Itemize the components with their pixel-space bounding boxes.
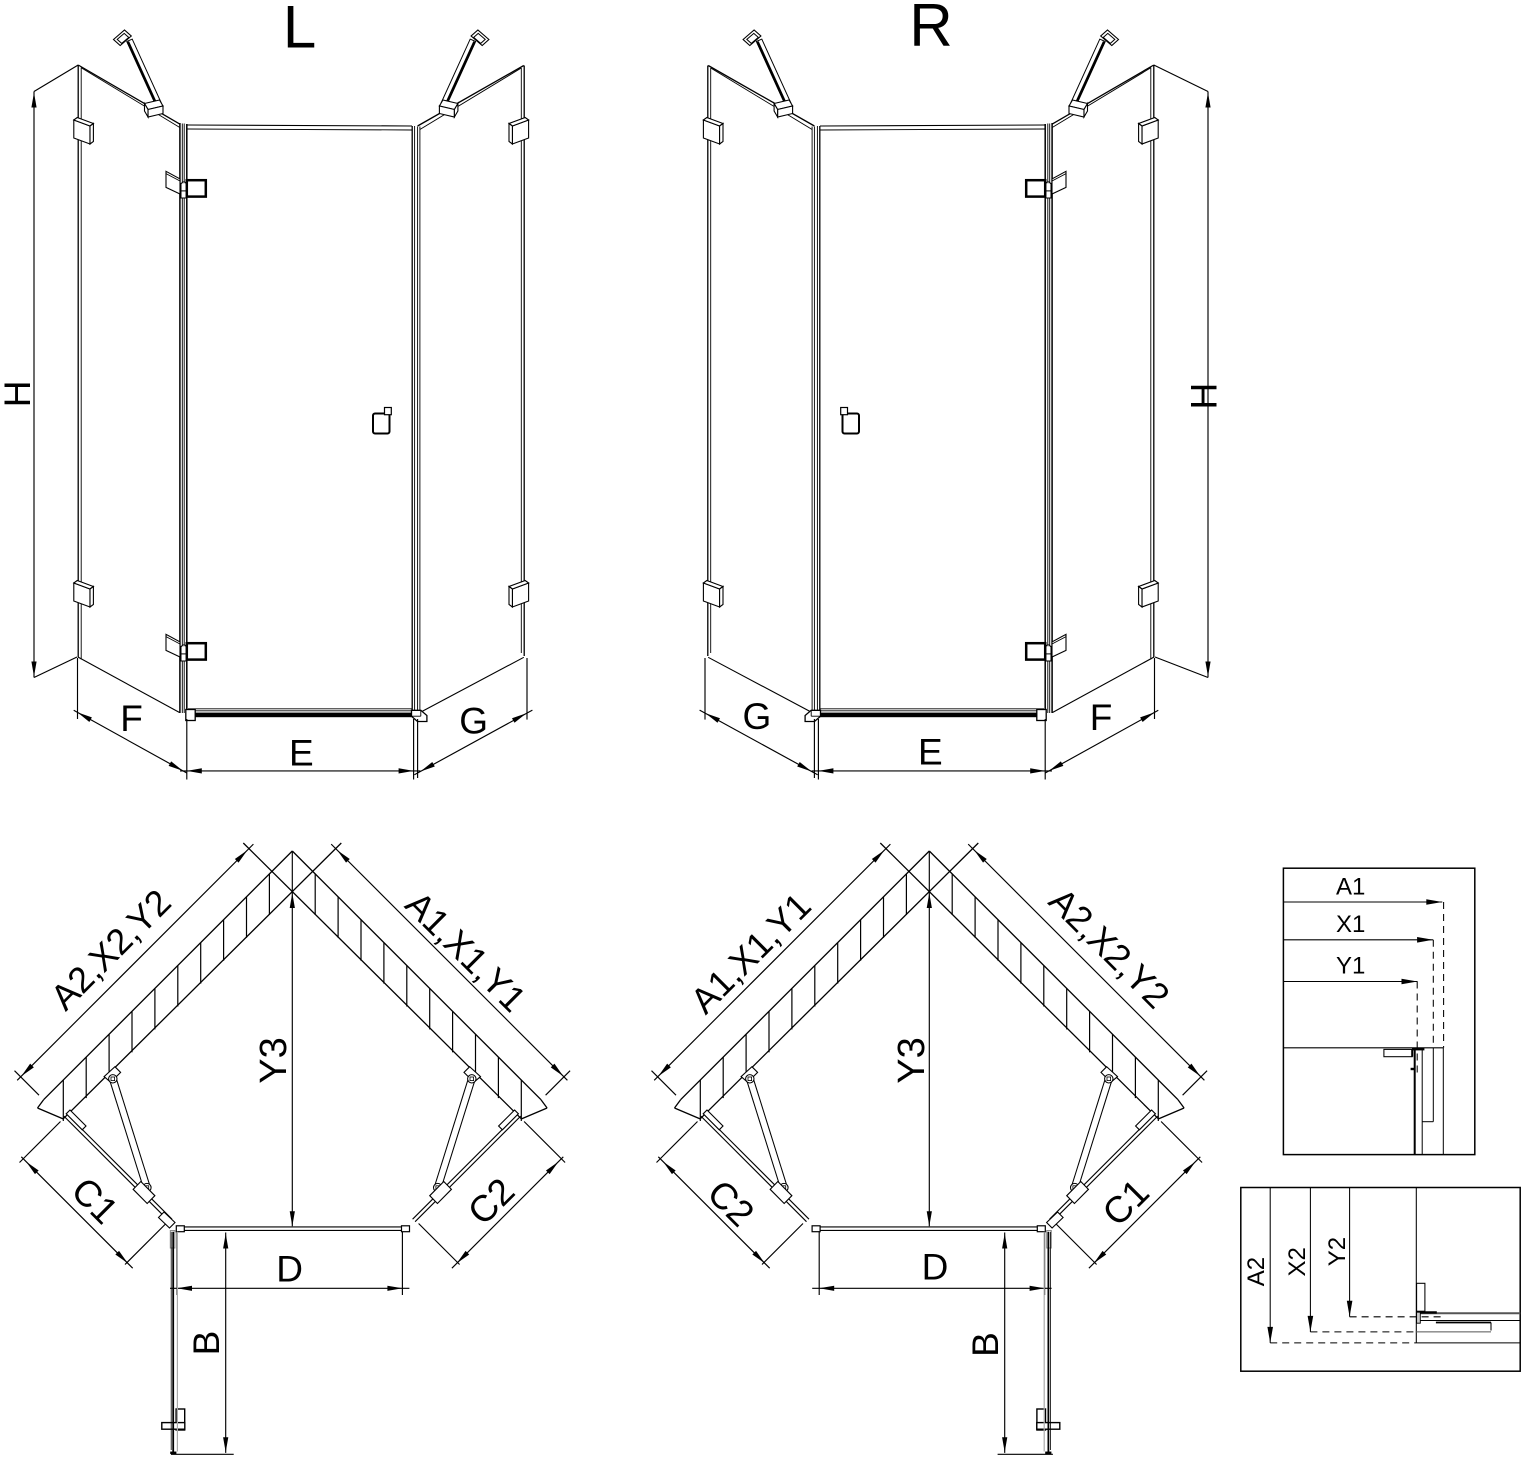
svg-text:H: H	[1184, 383, 1225, 410]
svg-text:X1: X1	[1336, 911, 1365, 938]
svg-text:R: R	[909, 0, 952, 59]
svg-text:Y2: Y2	[1324, 1237, 1351, 1266]
svg-text:C1: C1	[64, 1169, 126, 1231]
svg-text:C2: C2	[460, 1170, 522, 1232]
svg-text:E: E	[289, 732, 314, 773]
svg-text:D: D	[276, 1249, 303, 1290]
svg-text:F: F	[1090, 697, 1113, 738]
svg-text:A2: A2	[1243, 1257, 1270, 1286]
svg-text:A1,X1,Y1: A1,X1,Y1	[398, 883, 535, 1020]
svg-text:F: F	[120, 698, 143, 739]
svg-text:Y3: Y3	[891, 1037, 933, 1083]
svg-text:A2,X2,Y2: A2,X2,Y2	[42, 881, 179, 1018]
svg-text:C2: C2	[700, 1172, 762, 1234]
svg-text:B: B	[186, 1331, 227, 1356]
svg-text:E: E	[918, 732, 943, 773]
svg-text:H: H	[0, 381, 38, 408]
svg-text:G: G	[459, 700, 488, 741]
svg-text:L: L	[283, 0, 316, 61]
svg-text:X2: X2	[1284, 1247, 1311, 1276]
svg-text:C1: C1	[1095, 1171, 1157, 1233]
svg-text:Y3: Y3	[253, 1037, 295, 1083]
svg-text:Y1: Y1	[1336, 952, 1365, 979]
svg-text:G: G	[743, 696, 772, 737]
svg-text:B: B	[965, 1332, 1006, 1357]
svg-text:A1: A1	[1336, 874, 1365, 901]
svg-text:D: D	[922, 1247, 949, 1288]
svg-text:A1,X1,Y1: A1,X1,Y1	[682, 885, 819, 1022]
svg-text:A2,X2,Y2: A2,X2,Y2	[1041, 880, 1178, 1017]
